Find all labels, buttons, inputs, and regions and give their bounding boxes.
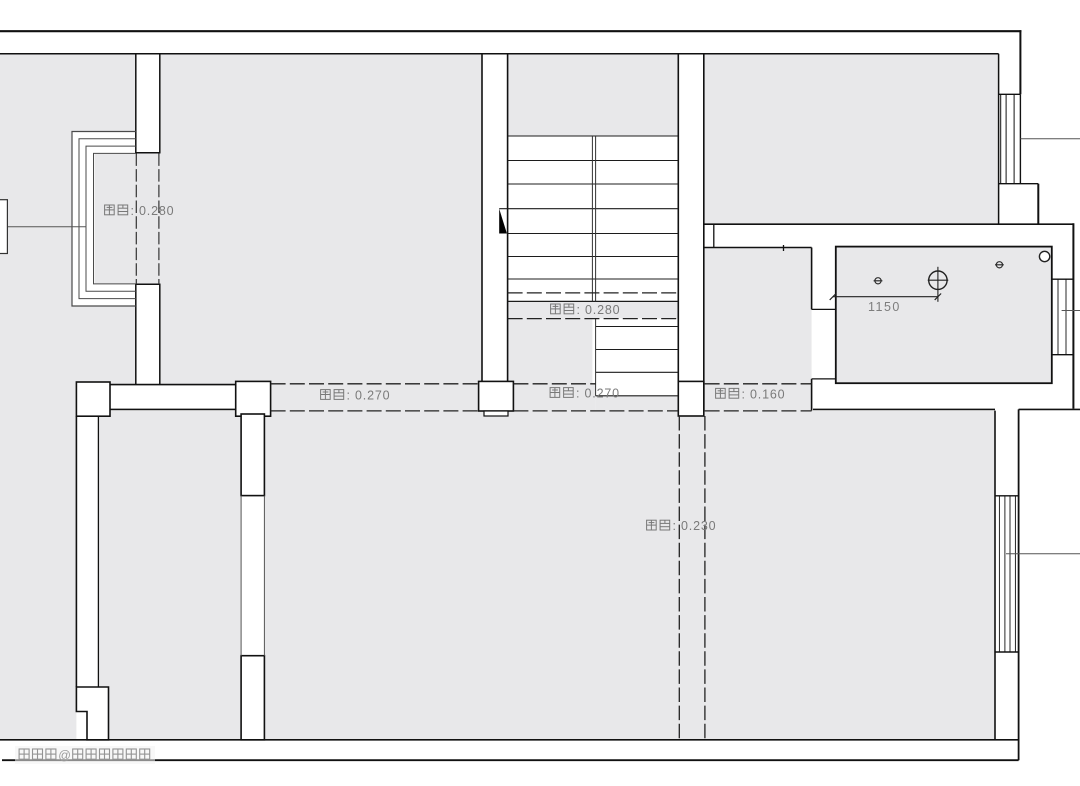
svg-text:: 0.280: : 0.280 [131,204,175,218]
svg-text:: 0.230: : 0.230 [673,519,717,533]
svg-text:@: @ [58,748,71,762]
svg-text:: 0.280: : 0.280 [577,303,621,317]
svg-text:: 0.160: : 0.160 [742,387,786,401]
svg-text:: 0.270: : 0.270 [347,389,391,403]
svg-text:: 0.270: : 0.270 [576,387,620,401]
svg-text:1150: 1150 [868,300,901,314]
